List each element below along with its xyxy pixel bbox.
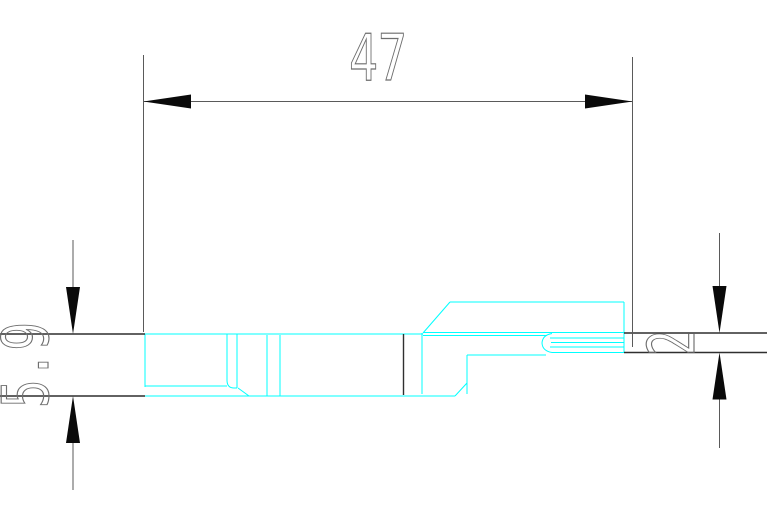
dimension-height-right-label: 2 [636,330,710,356]
dimension-height-right-2: 2 [636,233,727,448]
profile-head-bevel [423,302,450,333]
dimension-height-left-5-9: 5.9 [0,240,80,490]
dimension-height-left-arrows [66,287,80,443]
arrowhead-up-icon [66,396,80,443]
dimension-length-label: 47 [349,22,407,96]
dimension-length-lines [144,55,633,347]
dimension-length-47: 47 [144,22,633,347]
arrowhead-left-icon [144,95,192,109]
part-profile-cyan [145,302,624,396]
dimension-height-left-label: 5.9 [0,322,64,408]
profile-groove [227,334,237,388]
arrowhead-up-icon [713,353,727,400]
arrowhead-right-icon [585,95,633,109]
arrowhead-down-icon [713,286,727,333]
cad-drawing-canvas: 47 5.9 2 [0,0,767,523]
profile-step-chamfer [455,383,467,396]
profile-groove-chamfer [238,388,249,396]
arrowhead-down-icon [66,287,80,334]
dimension-height-right-arrows [713,286,727,400]
profile-screw-nose [542,334,552,353]
cad-drawing: 47 5.9 2 [0,0,767,523]
